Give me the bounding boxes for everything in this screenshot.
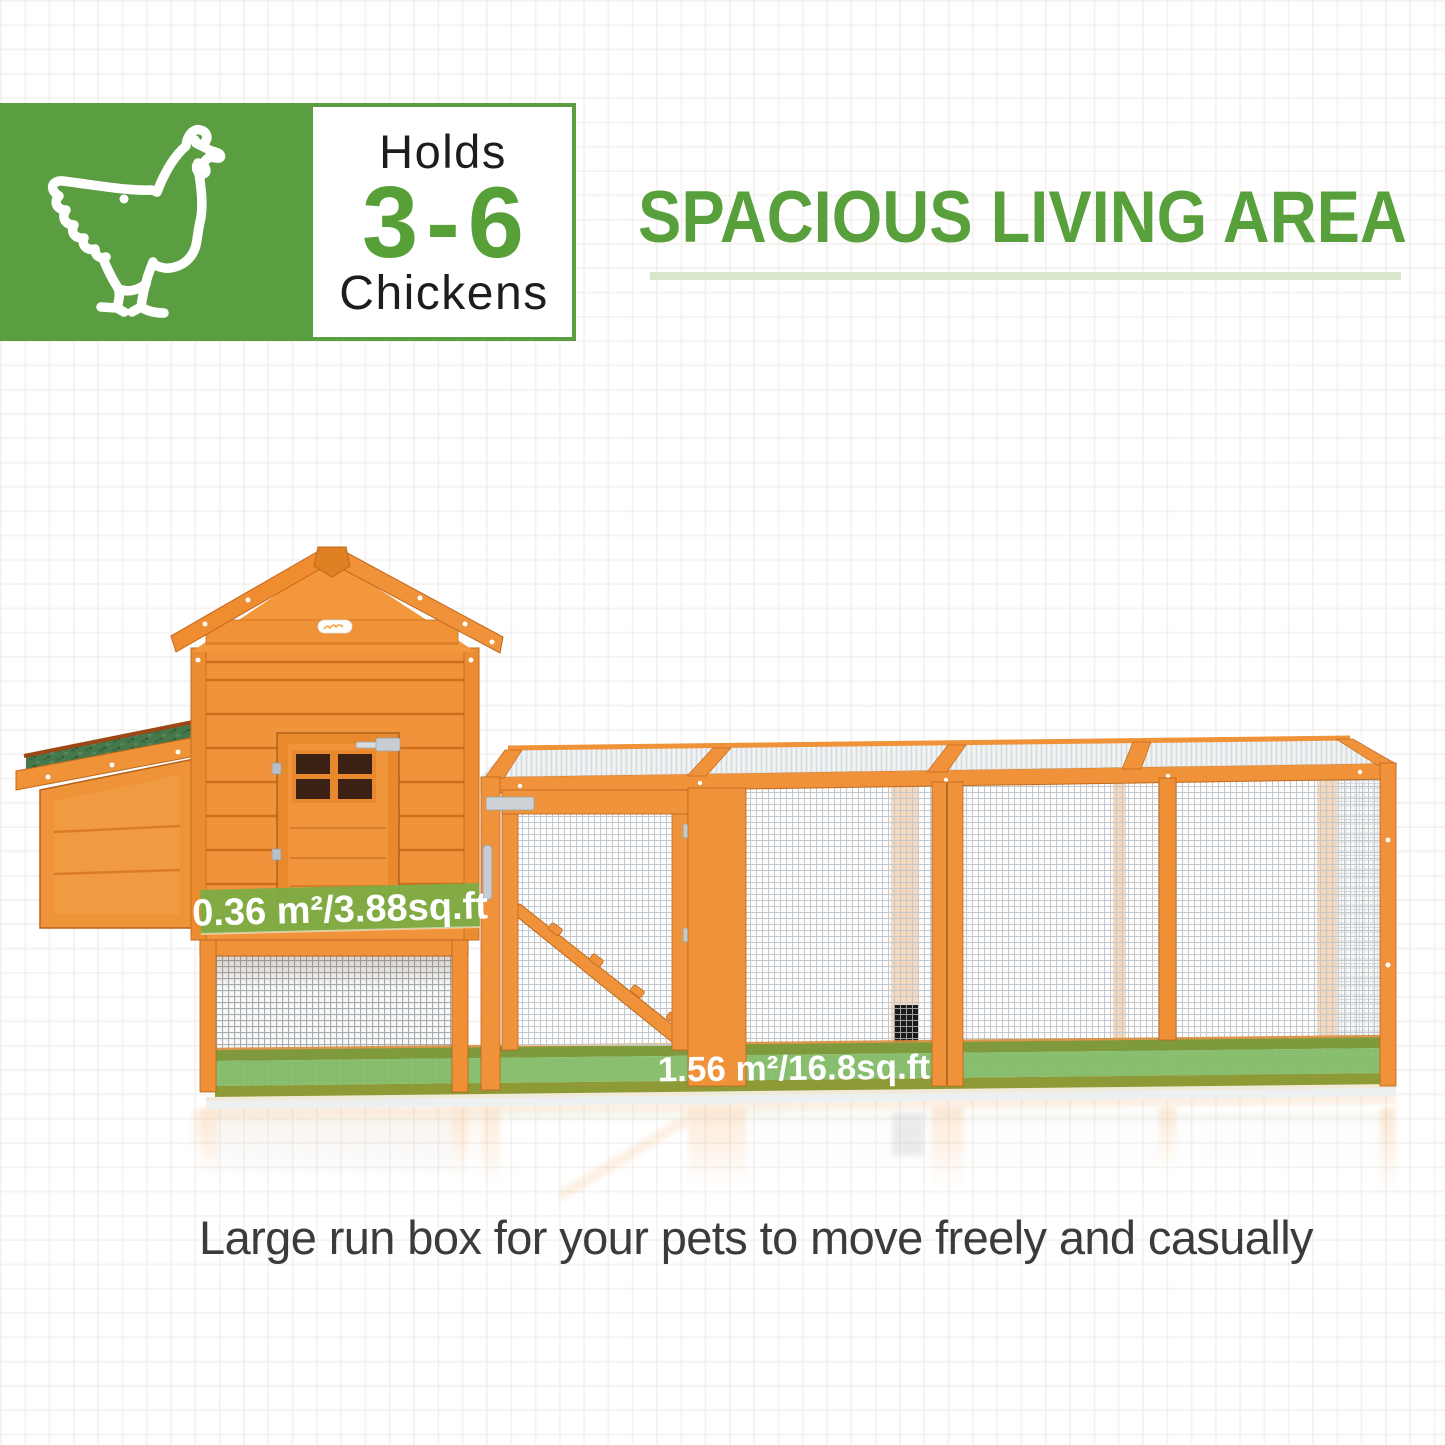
svg-text:0.36 m²/3.88sq.ft: 0.36 m²/3.88sq.ft: [192, 885, 489, 934]
svg-text:1.56 m²/16.8sq.ft: 1.56 m²/16.8sq.ft: [658, 1048, 931, 1090]
